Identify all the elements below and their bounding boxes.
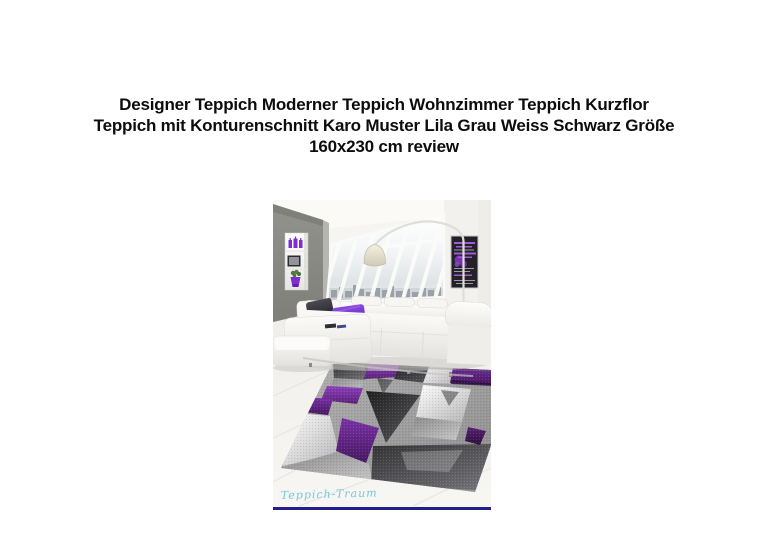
- product-photo: [273, 200, 491, 507]
- title-line-1: Designer Teppich Moderner Teppich Wohnzi…: [0, 94, 768, 115]
- page-title: Designer Teppich Moderner Teppich Wohnzi…: [0, 94, 768, 157]
- watermark-text: Teppich-Traum: [281, 486, 378, 502]
- sofa-armrest: [443, 301, 491, 365]
- niche-picture-frame: [288, 256, 301, 267]
- sofa: [273, 294, 491, 377]
- photo-underline: [273, 507, 491, 510]
- slide-page: Designer Teppich Moderner Teppich Wohnzi…: [0, 0, 768, 543]
- niche-purple-vases: [289, 237, 303, 249]
- title-line-3: 160x230 cm review: [0, 136, 768, 157]
- title-line-2: Teppich mit Konturenschnitt Karo Muster …: [0, 115, 768, 136]
- niche-shelf-2: [286, 269, 307, 270]
- product-photo-figure: Teppich-Traum: [273, 200, 491, 510]
- niche-shelf: [286, 251, 307, 252]
